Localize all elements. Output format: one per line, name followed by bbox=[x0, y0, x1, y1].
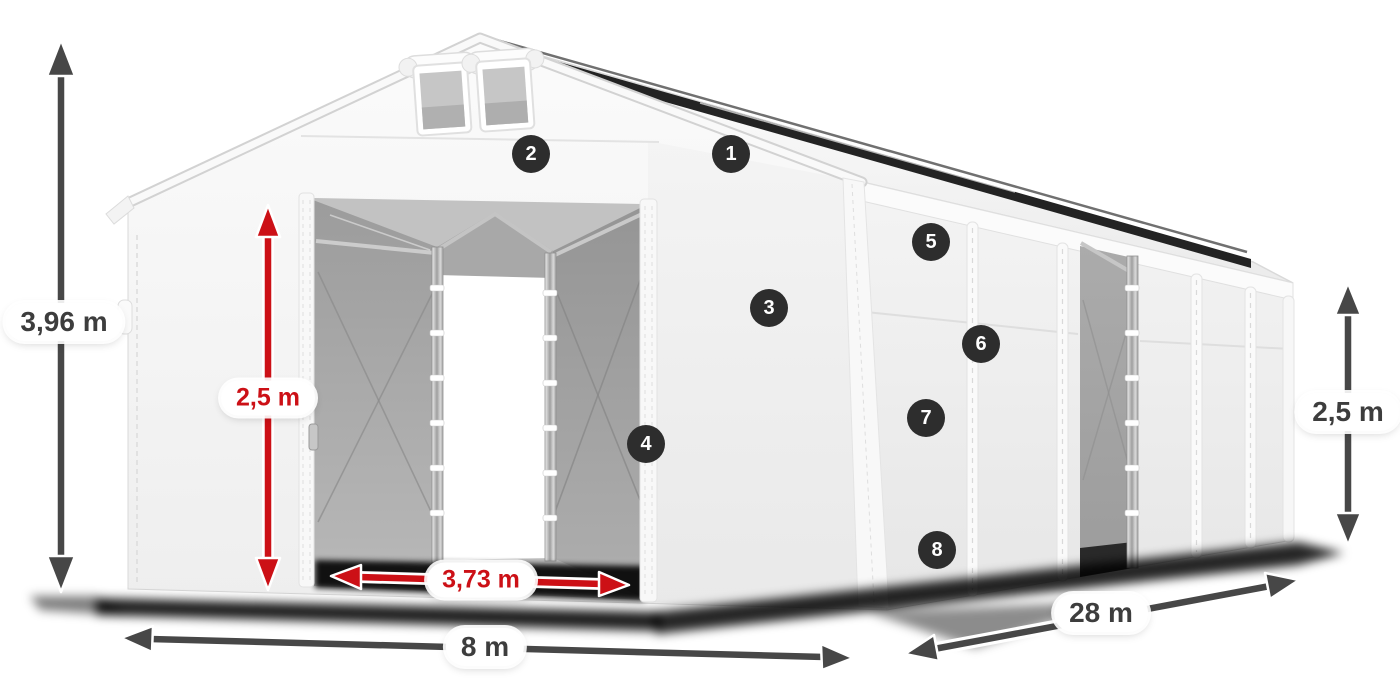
tent-dimension-diagram: 3,96 m 2,5 m 3,73 m 8 m 28 m 2,5 m 1 2 3… bbox=[0, 0, 1400, 700]
side-door-pole bbox=[1127, 256, 1138, 568]
hotspot-marker-8[interactable]: 8 bbox=[918, 531, 956, 569]
dim-label-side-height: 2,5 m bbox=[1297, 393, 1399, 431]
dim-label-front-width: 8 m bbox=[446, 628, 524, 666]
hotspot-marker-5[interactable]: 5 bbox=[912, 223, 950, 261]
door-leaf-left bbox=[313, 200, 437, 585]
tent-illustration bbox=[0, 0, 1400, 700]
dim-label-side-length: 28 m bbox=[1054, 594, 1148, 632]
hotspot-marker-4[interactable]: 4 bbox=[627, 425, 665, 463]
door-leaf-right bbox=[553, 206, 644, 598]
hotspot-marker-2[interactable]: 2 bbox=[512, 135, 550, 173]
doorway-see-through bbox=[437, 247, 553, 560]
dim-label-door-height: 2,5 m bbox=[221, 381, 315, 416]
front-doorway bbox=[313, 198, 644, 601]
dim-label-door-width: 3,73 m bbox=[427, 563, 535, 598]
hotspot-marker-3[interactable]: 3 bbox=[750, 289, 788, 327]
dim-label-total-height: 3,96 m bbox=[5, 303, 122, 341]
hotspot-marker-1[interactable]: 1 bbox=[712, 135, 750, 173]
door-handle bbox=[309, 424, 318, 450]
hotspot-marker-6[interactable]: 6 bbox=[962, 325, 1000, 363]
side-door-opening bbox=[1080, 243, 1139, 577]
hotspot-marker-7[interactable]: 7 bbox=[907, 399, 945, 437]
